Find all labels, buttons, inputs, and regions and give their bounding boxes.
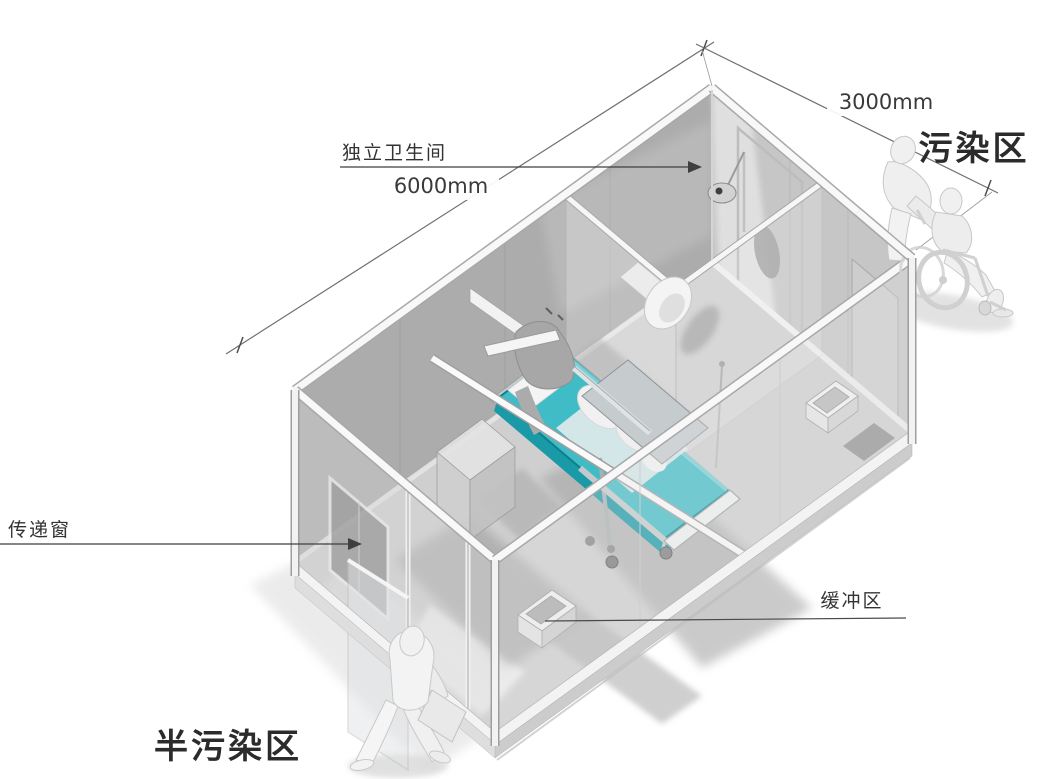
bathroom-callout-label: 独立卫生间 <box>342 142 447 164</box>
semi-contaminated-zone-label: 半污染区 <box>154 727 302 767</box>
dimension-6000-label: 6000mm <box>394 174 488 198</box>
contaminated-zone-label: 污染区 <box>919 129 1030 169</box>
dimension-3000-label: 3000mm <box>839 90 933 114</box>
wheelchair-patient-head <box>940 188 962 214</box>
isolation-ward-diagram: 6000mm 3000mm 独立卫生间 传递窗 缓冲区 污染区 半污染区 <box>0 0 1050 779</box>
buffer-zone-callout-label: 缓冲区 <box>820 590 883 612</box>
axonometric-rendering: 6000mm 3000mm 独立卫生间 传递窗 缓冲区 污染区 半污染区 <box>0 0 1050 779</box>
transfer-window-callout-label: 传递窗 <box>8 519 71 541</box>
